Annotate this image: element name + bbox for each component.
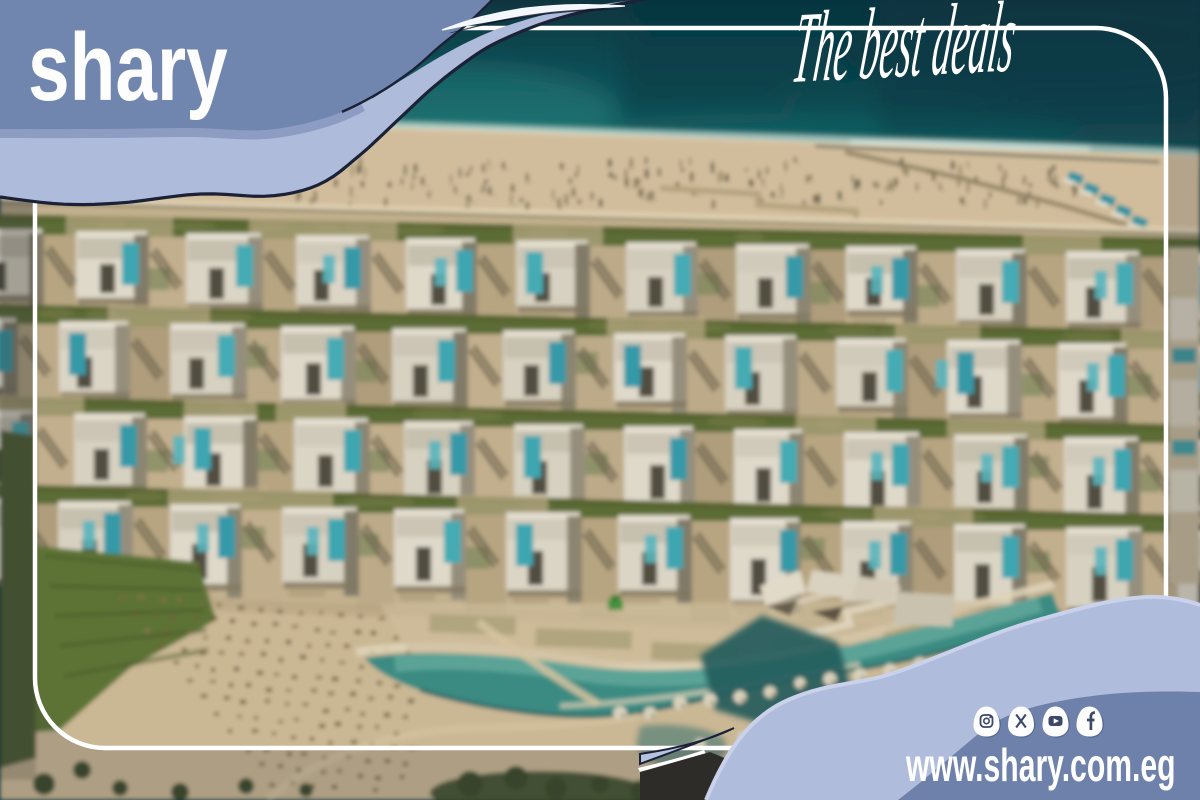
svg-text:shary: shary — [28, 14, 228, 121]
svg-text:www.shary.com.eg: www.shary.com.eg — [905, 741, 1175, 792]
svg-text:The best deals: The best deals — [787, 0, 1022, 104]
